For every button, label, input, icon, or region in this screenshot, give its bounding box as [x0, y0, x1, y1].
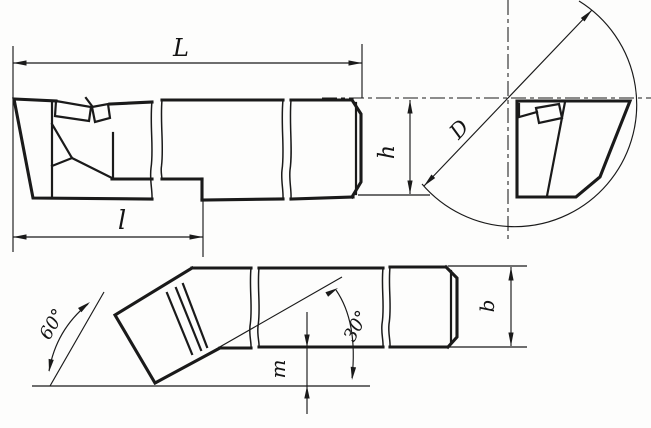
label-h: h — [375, 145, 400, 159]
bore-circle: D — [322, 0, 651, 242]
break-line — [151, 101, 152, 199]
dim-head-angle-60: 60° — [32, 292, 370, 386]
label-m: m — [266, 360, 290, 379]
drawing-canvas: L l h D — [0, 0, 651, 428]
angle-leg-line — [50, 292, 104, 386]
label-D: D — [444, 115, 474, 145]
dim-shank-height: h — [358, 100, 430, 195]
braze-line — [167, 293, 192, 354]
break-line — [389, 267, 390, 347]
dim-overall-length: L — [13, 34, 362, 252]
label-b: b — [475, 300, 499, 313]
plan-view: 60° 30° m b — [32, 266, 527, 414]
label-angle-30: 30° — [340, 307, 374, 345]
dim-shank-width: b — [448, 266, 527, 347]
side-view-shank-end — [290, 100, 361, 199]
dim-working-length: l — [13, 200, 203, 257]
break-line — [382, 268, 383, 347]
corner-chamfer-line — [577, 178, 598, 196]
side-view: L l h — [13, 34, 430, 257]
plan-view-shank — [192, 267, 457, 348]
technical-drawing-cutting-tool: L l h D — [0, 0, 651, 428]
break-line — [258, 268, 259, 347]
end-view — [517, 101, 630, 197]
side-view-head — [14, 98, 152, 199]
plan-view-head — [115, 268, 220, 383]
break-line — [282, 100, 283, 199]
label-l: l — [118, 206, 126, 236]
carbide-insert-end — [536, 104, 562, 123]
dim-tip-offset: m — [266, 312, 310, 414]
insert-tip-step — [92, 104, 110, 122]
side-view-shank-middle — [161, 100, 283, 200]
label-L: L — [172, 34, 189, 62]
carbide-insert-side — [55, 101, 91, 121]
dim-edge-angle-30: 30° — [155, 277, 373, 384]
break-line — [290, 100, 291, 198]
break-line — [161, 100, 162, 180]
break-line — [250, 268, 251, 348]
label-angle-60: 60° — [35, 305, 69, 343]
